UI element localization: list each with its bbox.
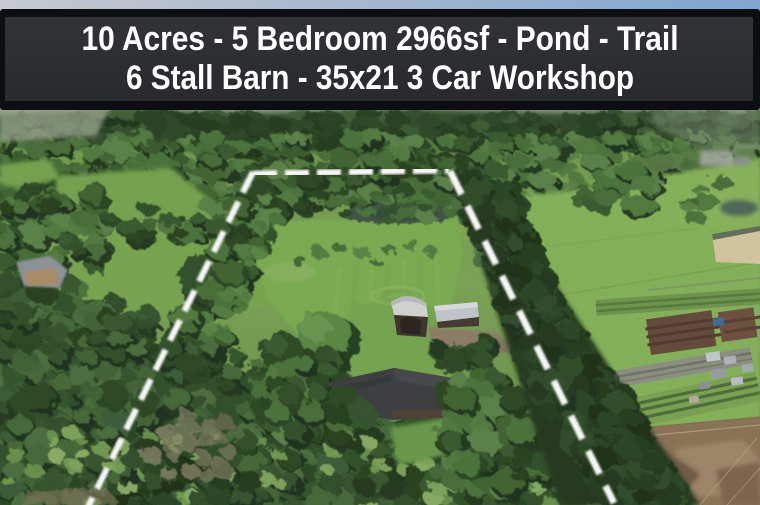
svg-text:6 Stall Barn - 35x21 3 Car Wor: 6 Stall Barn - 35x21 3 Car Workshop xyxy=(126,59,634,97)
svg-text:10 Acres - 5 Bedroom 2966sf -: 10 Acres - 5 Bedroom 2966sf - Pond - Tra… xyxy=(82,20,679,58)
